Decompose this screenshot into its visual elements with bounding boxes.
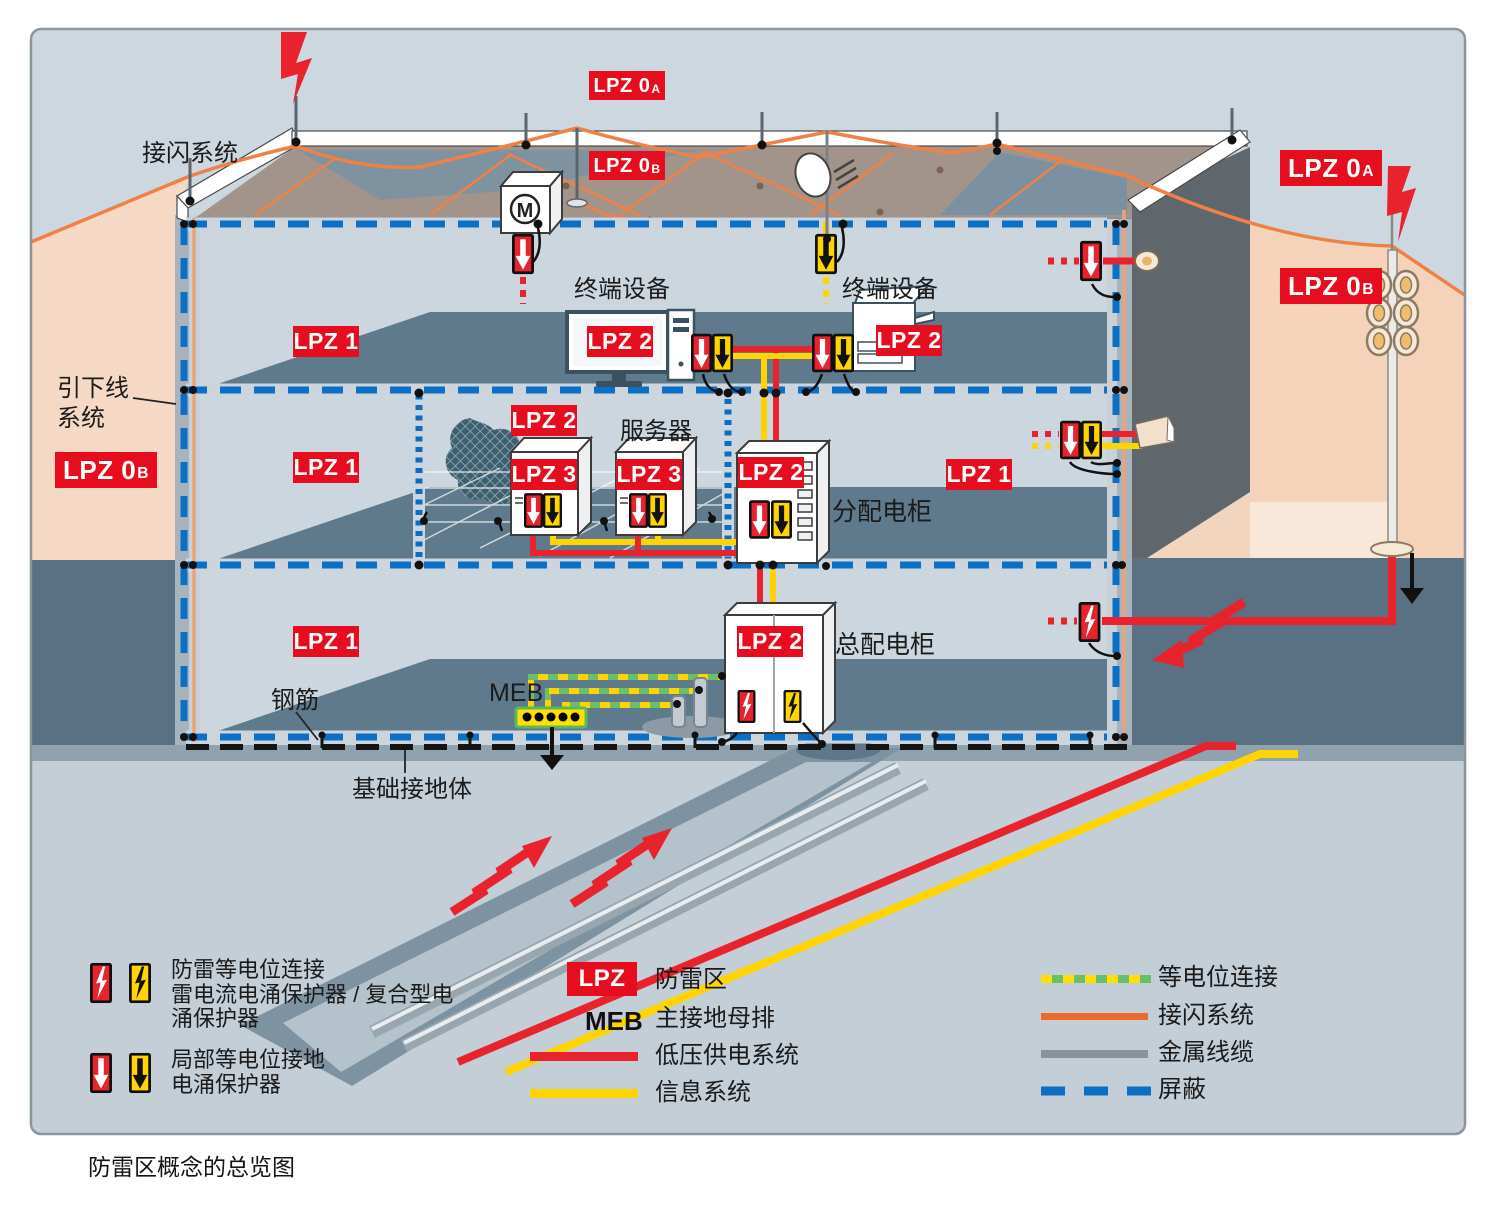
label-down-conductor-line2: 系统 <box>57 405 105 432</box>
legend-lightning-spd-line1: 防雷等电位连接 <box>171 958 453 983</box>
legend-power-label: 低压供电系统 <box>655 1044 799 1068</box>
shield-line-swatch <box>1041 1086 1151 1096</box>
lpz2-badge-printer: LPZ 2 <box>876 325 942 356</box>
legend-local-spd-line2: 电涌保护器 <box>171 1073 325 1098</box>
lpz2-badge-monitor: LPZ 2 <box>587 326 653 357</box>
label-down-conductor: 引下线 系统 <box>57 374 147 434</box>
legend-meb-label: 主接地母排 <box>655 1007 775 1031</box>
lpz2-badge-distribution: LPZ 2 <box>738 457 804 488</box>
power-line-swatch <box>530 1052 638 1061</box>
lpz1-badge-floor3: LPZ 1 <box>293 626 359 657</box>
label-down-conductor-line1: 引下线 <box>57 375 129 402</box>
surge-spd-icon <box>90 1048 112 1098</box>
lpz3-badge-rack1: LPZ 3 <box>511 459 577 490</box>
legend-lightning-spd-line2: 雷电流电涌保护器 / 复合型电 <box>171 983 453 1008</box>
lpz0a-badge-right: LPZ 0A <box>1280 150 1382 186</box>
info-line-swatch <box>530 1089 638 1098</box>
lpz2-badge-main-cabinet: LPZ 2 <box>737 626 803 657</box>
legend-meb-abbr: MEB <box>585 1006 643 1037</box>
lpz2-badge-server-room: LPZ 2 <box>511 405 577 436</box>
legend-air-termination-label: 接闪系统 <box>1158 1004 1254 1028</box>
label-air-termination: 接闪系统 <box>142 139 238 169</box>
label-foundation-earth: 基础接地体 <box>352 775 472 805</box>
label-distribution-cabinet: 分配电柜 <box>832 497 932 528</box>
legend-lightning-spd-line3: 涌保护器 <box>171 1007 453 1032</box>
lpz1-badge-floor2-right: LPZ 1 <box>946 459 1012 490</box>
lpz1-badge-floor2: LPZ 1 <box>293 452 359 483</box>
lpz0b-badge-left: LPZ 0B <box>55 452 157 488</box>
label-terminal-left: 终端设备 <box>574 275 670 305</box>
legend-metal-cable-label: 金属线缆 <box>1158 1041 1254 1065</box>
legend-shield-label: 屏蔽 <box>1158 1078 1206 1102</box>
lpz-diagram: M <box>0 0 1496 1205</box>
label-meb: MEB <box>489 678 543 709</box>
legend-local-spd-line1: 局部等电位接地 <box>171 1048 325 1073</box>
legend-local-spd: 局部等电位接地 电涌保护器 <box>90 1048 325 1098</box>
label-main-distribution-cabinet: 总配电柜 <box>835 630 935 661</box>
legend-lpz-badge: LPZ <box>567 962 637 996</box>
lightning-spd-icon <box>129 958 151 1008</box>
legend-lpz-label: 防雷区 <box>655 968 727 992</box>
lightning-spd-icon <box>90 958 112 1008</box>
legend-bonding-label: 等电位连接 <box>1158 966 1278 990</box>
metal-cable-swatch <box>1041 1050 1148 1058</box>
rooftop-motor: M <box>501 172 562 233</box>
lpz1-badge-floor1: LPZ 1 <box>293 326 359 357</box>
label-terminal-right: 终端设备 <box>842 275 938 305</box>
surge-spd-icon <box>129 1048 151 1098</box>
label-rebar: 钢筋 <box>271 686 319 716</box>
diagram-caption: 防雷区概念的总览图 <box>88 1148 295 1182</box>
bonding-line-swatch <box>1041 974 1151 984</box>
legend-lightning-spd: 防雷等电位连接 雷电流电涌保护器 / 复合型电 涌保护器 <box>90 958 453 1032</box>
rod-base-plate <box>567 199 587 207</box>
motor-icon: M <box>517 200 534 222</box>
ground-band-left <box>31 560 177 745</box>
label-server: 服务器 <box>620 417 692 447</box>
lpz0a-badge-top: LPZ 0A <box>589 71 665 100</box>
air-termination-swatch <box>1041 1013 1148 1020</box>
lpz3-badge-rack2: LPZ 3 <box>616 459 682 490</box>
legend-info-label: 信息系统 <box>655 1081 751 1105</box>
lpz0b-badge-right: LPZ 0B <box>1280 268 1382 304</box>
lpz0b-badge-roof: LPZ 0B <box>589 151 665 180</box>
